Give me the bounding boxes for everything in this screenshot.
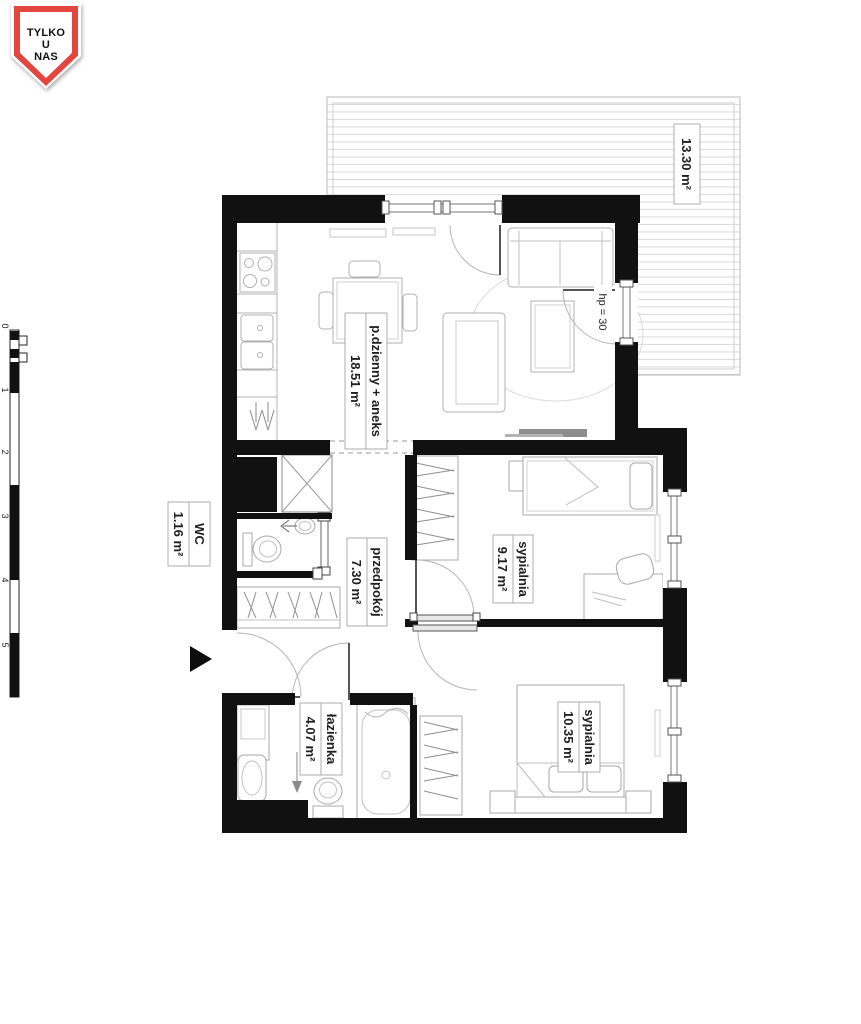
bath-washbasin-icon xyxy=(238,755,266,801)
tv-stand-shelf xyxy=(505,434,563,437)
room-name: łazienka xyxy=(324,714,339,765)
room-name: sypialnia xyxy=(516,541,531,597)
room-area: 18.51 m² xyxy=(348,355,363,408)
wall-segment xyxy=(615,342,638,442)
wall-segment xyxy=(222,223,237,457)
wall-segment xyxy=(222,440,330,455)
wall-segment xyxy=(413,440,617,455)
bedroom1-bed xyxy=(523,457,657,515)
washing-machine-icon xyxy=(237,705,269,760)
kitchen-sink-icon xyxy=(241,315,273,369)
radiator xyxy=(330,229,386,237)
room-area: 1.16 m² xyxy=(171,512,186,557)
scale-label: 0 xyxy=(0,323,10,328)
radiator xyxy=(655,515,660,561)
scale-label: 5 xyxy=(0,642,10,647)
stove-icon xyxy=(240,253,275,292)
wall-segment xyxy=(222,195,385,223)
room-area: 7.30 m² xyxy=(349,560,364,605)
scale-label: 1 xyxy=(0,387,10,392)
wall-segment xyxy=(502,195,640,223)
balcony-area-label: 13.30 m² xyxy=(674,124,700,204)
promo-badge: TYLKO U NAS xyxy=(14,6,78,86)
room-label-hallway: przedpokój 7.30 m² xyxy=(347,538,387,626)
badge-line: TYLKO xyxy=(27,27,65,39)
chair xyxy=(349,261,380,277)
floor-plan-drawing: 0 1 2 3 4 5 p.dzienny + aneks 18.51 m² W… xyxy=(0,0,861,1024)
wall-segment xyxy=(477,619,663,627)
room-label-wc: WC 1.16 m² xyxy=(168,502,210,566)
room-label-bedroom1: sypialnia 9.17 m² xyxy=(493,535,533,603)
window-height-note: hp = 30 xyxy=(594,285,612,339)
chair xyxy=(403,294,417,331)
wall-segment xyxy=(222,512,237,630)
wall-segment xyxy=(405,455,417,560)
wall-segment xyxy=(615,428,687,455)
wall-segment xyxy=(222,693,295,705)
window-bedroom1 xyxy=(663,489,687,588)
scale-label: 2 xyxy=(0,449,10,454)
room-label-bathroom: łazienka 4.07 m² xyxy=(300,703,342,775)
scale-bar: 0 1 2 3 4 5 xyxy=(0,323,27,697)
room-name: WC xyxy=(192,523,207,545)
ventilation-shaft xyxy=(282,455,332,512)
bathtub-icon xyxy=(357,698,415,820)
room-area: 4.07 m² xyxy=(303,717,318,762)
floor-plan-page: TYLKO U NAS xyxy=(0,0,861,1024)
hall-wardrobe xyxy=(237,587,340,628)
armchair xyxy=(443,313,505,412)
wc-washbasin-icon xyxy=(295,518,315,534)
room-name: sypialnia xyxy=(582,709,597,765)
wall-segment xyxy=(615,223,638,283)
badge-line: U xyxy=(42,39,50,51)
note-text: hp = 30 xyxy=(596,293,608,330)
wall-segment xyxy=(663,455,687,492)
room-area: 9.17 m² xyxy=(495,547,510,592)
window-sill xyxy=(393,228,435,235)
wall-segment xyxy=(222,457,277,512)
room-area: 10.35 m² xyxy=(561,711,576,764)
entrance-arrow-icon xyxy=(190,646,212,672)
chair xyxy=(319,292,333,329)
room-label-bedroom2: sypialnia 10.35 m² xyxy=(558,702,600,772)
bedroom2-door-leaf xyxy=(413,615,477,621)
bedroom1-nightstand xyxy=(509,461,523,491)
bedroom2-wardrobe xyxy=(420,716,462,815)
window-bedroom2 xyxy=(663,679,687,782)
wall-segment xyxy=(222,818,687,833)
room-name: p.dzienny + aneks xyxy=(369,325,384,437)
wall-segment xyxy=(410,705,417,818)
wall-segment xyxy=(663,588,687,682)
scale-label: 4 xyxy=(0,577,10,582)
radiator xyxy=(655,710,660,756)
wall-segment xyxy=(237,513,332,519)
bedroom2-nightstand xyxy=(490,791,515,813)
bath-toilet-icon xyxy=(313,778,343,818)
bedroom2-door-leaf xyxy=(413,625,477,631)
bedroom2-nightstand xyxy=(626,791,651,813)
badge-line: NAS xyxy=(34,51,58,63)
window-balcony-right xyxy=(615,280,638,345)
bedroom1-wardrobe xyxy=(412,456,458,560)
window-top xyxy=(382,195,502,223)
wall-segment xyxy=(663,782,687,818)
room-name: przedpokój xyxy=(370,547,385,616)
sofa xyxy=(508,228,613,287)
wall-segment xyxy=(237,571,317,578)
wall-segment xyxy=(350,693,413,705)
scale-label: 3 xyxy=(0,513,10,518)
room-area: 13.30 m² xyxy=(679,138,694,191)
room-label-living: p.dzienny + aneks 18.51 m² xyxy=(345,313,387,449)
